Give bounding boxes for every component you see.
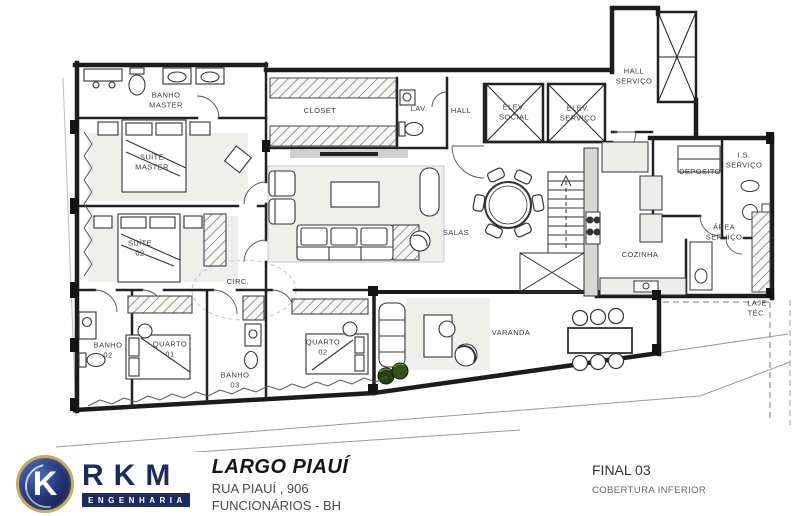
quarto-01-furniture	[126, 296, 192, 379]
room-label-laje-tec: LAJE TÉC.	[747, 298, 767, 318]
room-label-salas: SALAS	[443, 228, 469, 238]
banho-03-fixtures	[243, 296, 264, 369]
floor-plan-canvas	[0, 0, 800, 452]
unit-level: COBERTURA INFERIOR	[592, 485, 706, 496]
room-label-varanda: VARANDA	[492, 328, 531, 338]
room-label-banho-02: BANHO 02	[94, 340, 123, 360]
varanda-dining-table	[568, 309, 632, 371]
room-label-lav: LAV.	[411, 104, 428, 114]
rkm-globe-icon: K	[16, 455, 74, 513]
room-label-deposito: DEPOSITO	[679, 167, 721, 177]
project-district: FUNCIONÁRIOS - BH	[212, 498, 349, 513]
room-label-hall-servico: HALL SERVIÇO	[616, 66, 652, 86]
kitchen-fixtures	[586, 142, 686, 295]
room-label-banho-master: BANHO MASTER	[149, 90, 183, 110]
room-label-cozinha: COZINHA	[622, 250, 659, 260]
project-name: LARGO PIAUÍ	[212, 456, 349, 479]
room-label-area-servico: ÁREA SERVIÇO	[706, 222, 742, 242]
rkm-logo-subtitle: ENGENHARIA	[82, 493, 190, 507]
room-label-quarto-02: QUARTO 02	[306, 337, 340, 357]
room-label-circ: CIRC.	[227, 277, 249, 287]
project-info: LARGO PIAUÍ RUA PIAUÍ , 906 FUNCIONÁRIOS…	[212, 456, 349, 513]
room-label-quarto-01: QUARTO 01	[153, 339, 187, 359]
unit-info: FINAL 03 COBERTURA INFERIOR	[592, 462, 706, 496]
rkm-logo-letters: RKM	[82, 461, 190, 491]
unit-final: FINAL 03	[592, 462, 706, 478]
room-label-banho-03: BANHO 03	[221, 370, 250, 390]
terrain-line-right	[659, 334, 788, 353]
laje-tecnica-boundary	[663, 302, 770, 420]
room-label-hall: HALL	[451, 106, 471, 116]
room-label-elev-social: ELEV. SOCIAL	[499, 102, 529, 122]
room-label-is-servico: I.S. SERVIÇO	[726, 150, 762, 170]
rkm-logo: K RKM ENGENHARIA	[16, 455, 190, 513]
floor-plan-page: BANHO MASTER SUÍTE MASTER SUÍTE 02 CLOSE…	[0, 0, 800, 516]
room-label-suite-02: SUÍTE 02	[128, 238, 152, 258]
project-address: RUA PIAUÍ , 906	[212, 481, 349, 496]
room-label-closet: CLOSET	[304, 106, 336, 116]
room-label-suite-master: SUÍTE MASTER	[135, 152, 169, 172]
title-block: K RKM ENGENHARIA LARGO PIAUÍ RUA PIAUÍ ,…	[0, 452, 800, 516]
room-label-elev-servico: ELEV. SERVIÇO	[560, 103, 596, 123]
service-stair-shaft	[658, 12, 696, 102]
rkm-logo-k: K	[33, 467, 58, 501]
rkm-logo-text: RKM ENGENHARIA	[82, 461, 190, 507]
